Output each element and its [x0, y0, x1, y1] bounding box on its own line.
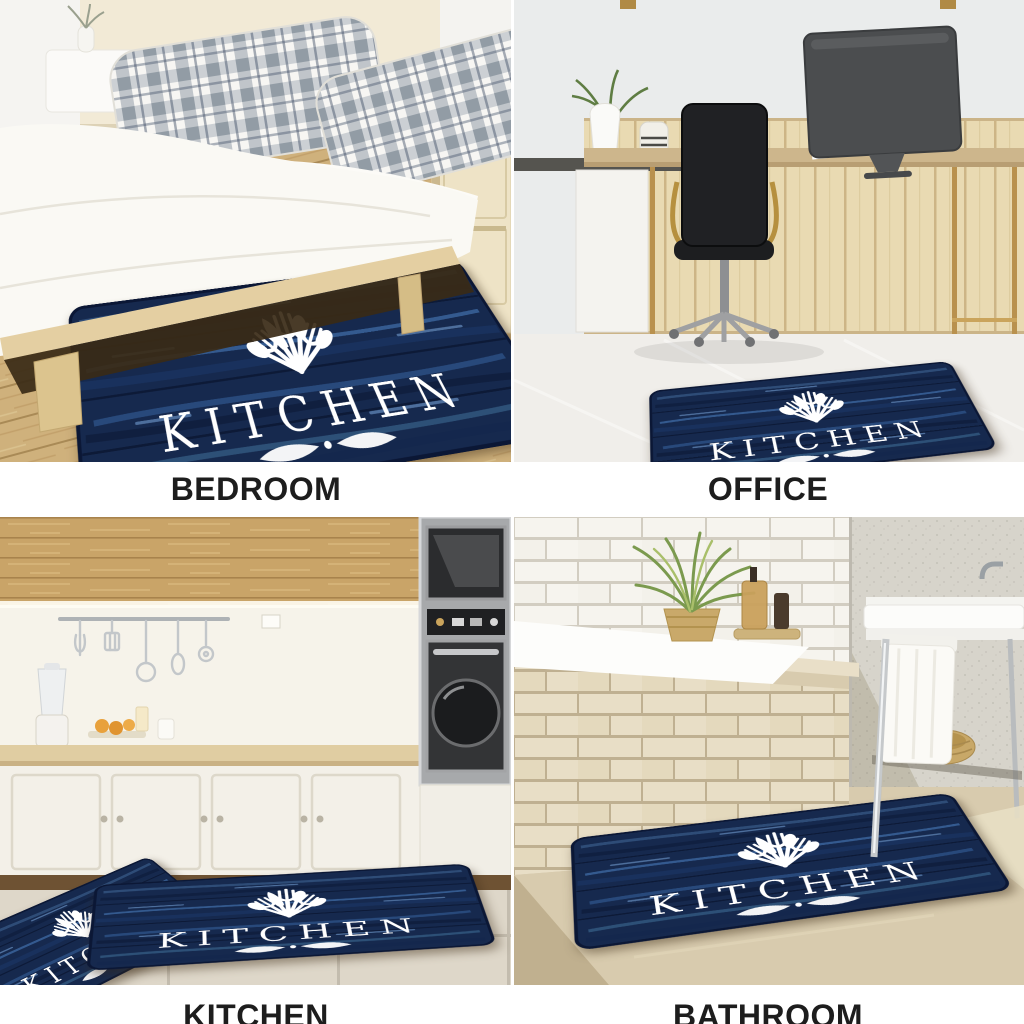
desk-cabinet [576, 170, 648, 332]
label-band-bottom: KITCHEN BATHROOM [0, 985, 1024, 1024]
product-collage: KITCHEN [0, 0, 1024, 1024]
cup [158, 719, 174, 739]
wall-lamp [620, 0, 636, 9]
photo-kitchen [0, 517, 511, 985]
label-kitchen: KITCHEN [0, 985, 512, 1024]
label-office: OFFICE [512, 462, 1024, 517]
label-bedroom: BEDROOM [0, 462, 512, 517]
oven-column [420, 517, 511, 877]
blender [36, 663, 68, 747]
photo-office [514, 0, 1024, 462]
wall-lamp [940, 0, 956, 9]
towel [877, 634, 957, 765]
outlet [262, 615, 280, 628]
photo-bedroom [0, 0, 511, 462]
photo-bathroom [514, 517, 1024, 985]
lower-cabinets [0, 766, 420, 877]
label-band-top: BEDROOM OFFICE [0, 462, 1024, 517]
countertop [0, 745, 420, 761]
label-bathroom: BATHROOM [512, 985, 1024, 1024]
